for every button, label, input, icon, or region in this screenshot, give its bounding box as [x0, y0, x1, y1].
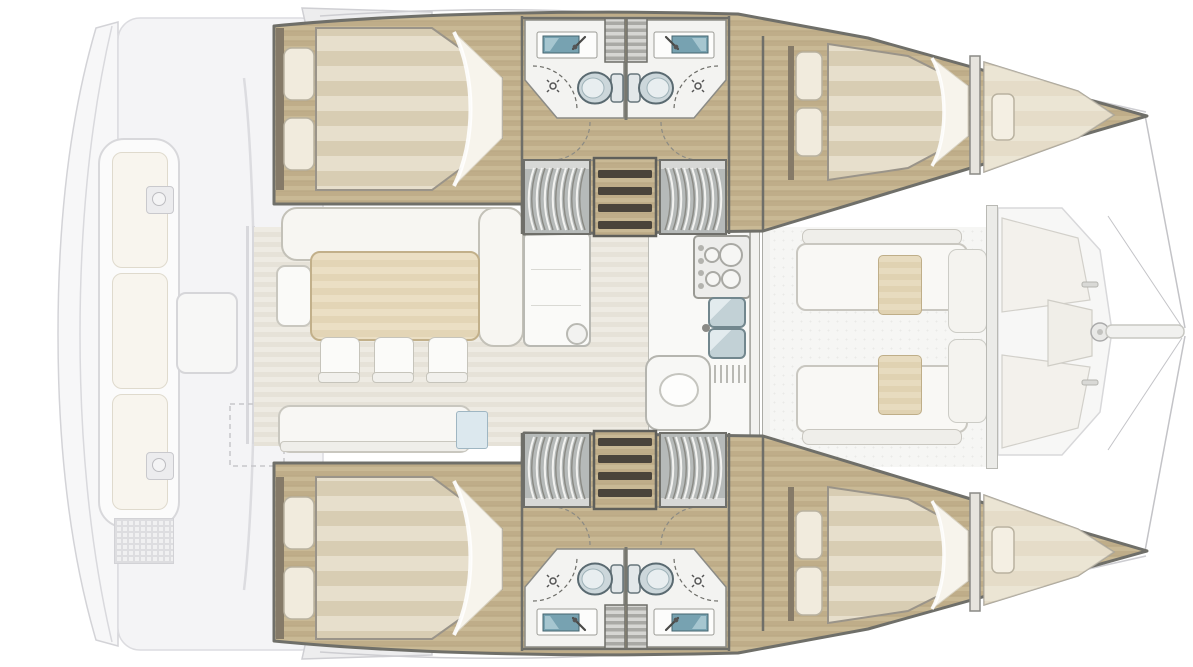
pillow	[992, 94, 1014, 140]
pillow	[796, 52, 822, 100]
burner-icon	[152, 192, 166, 206]
pillow	[796, 108, 822, 156]
cockpit-table	[176, 292, 238, 374]
stool	[566, 323, 588, 345]
stove-knobs	[698, 245, 705, 289]
port-hull	[268, 429, 1158, 661]
pillow	[284, 118, 314, 170]
pillow	[284, 567, 314, 619]
bed-headboard	[276, 28, 284, 190]
pillow	[284, 48, 314, 100]
bed-headboard	[276, 477, 284, 639]
salon	[250, 205, 770, 448]
burner-icon	[152, 458, 166, 472]
burner-icon	[704, 247, 720, 263]
deck-hatch	[114, 518, 174, 564]
crossbeam-wall	[970, 56, 980, 174]
hatch-panel	[605, 18, 625, 62]
chair-back	[426, 372, 468, 383]
grill-unit	[146, 452, 174, 480]
pillow	[992, 527, 1014, 573]
starboard-hull	[268, 6, 1158, 238]
bed-headboard	[788, 46, 794, 180]
burner-icon	[719, 243, 743, 267]
dining-chair	[428, 337, 468, 379]
cocktail-table	[878, 255, 922, 315]
pillow	[284, 497, 314, 549]
bed-headboard	[788, 487, 794, 621]
hatch-panel	[627, 18, 647, 62]
anchor-locker	[1048, 300, 1092, 366]
galley-cabinet	[645, 355, 711, 431]
console-shelf-line	[531, 269, 581, 270]
dining-table	[310, 251, 480, 341]
bench-cushion	[112, 273, 168, 389]
pillow	[796, 567, 822, 615]
door-mullion	[750, 225, 760, 449]
stove	[693, 235, 751, 299]
hatch-panel	[627, 605, 647, 649]
chair-back	[372, 372, 414, 383]
chair-back	[318, 372, 360, 383]
burner-icon	[705, 271, 721, 287]
console-shelf-line	[531, 305, 581, 306]
cocktail-table	[878, 355, 922, 415]
bowl-icon	[659, 373, 699, 407]
bowsprit	[1106, 325, 1184, 338]
hatch-panel	[605, 605, 625, 649]
side-seat	[276, 265, 312, 327]
sunpad	[948, 339, 987, 423]
sunpad	[948, 249, 987, 333]
faucet	[702, 324, 710, 332]
dining-chair	[320, 337, 360, 379]
dining-chair	[374, 337, 414, 379]
grill-unit	[146, 186, 174, 214]
sink-basin	[708, 328, 746, 359]
pillow	[796, 511, 822, 559]
catamaran-floor-plan	[0, 0, 1193, 667]
sink-basin	[708, 297, 746, 328]
burner-icon	[721, 269, 741, 289]
galley-sink	[702, 297, 746, 361]
forward-cockpit	[770, 205, 996, 467]
crossbeam-wall	[970, 493, 980, 611]
